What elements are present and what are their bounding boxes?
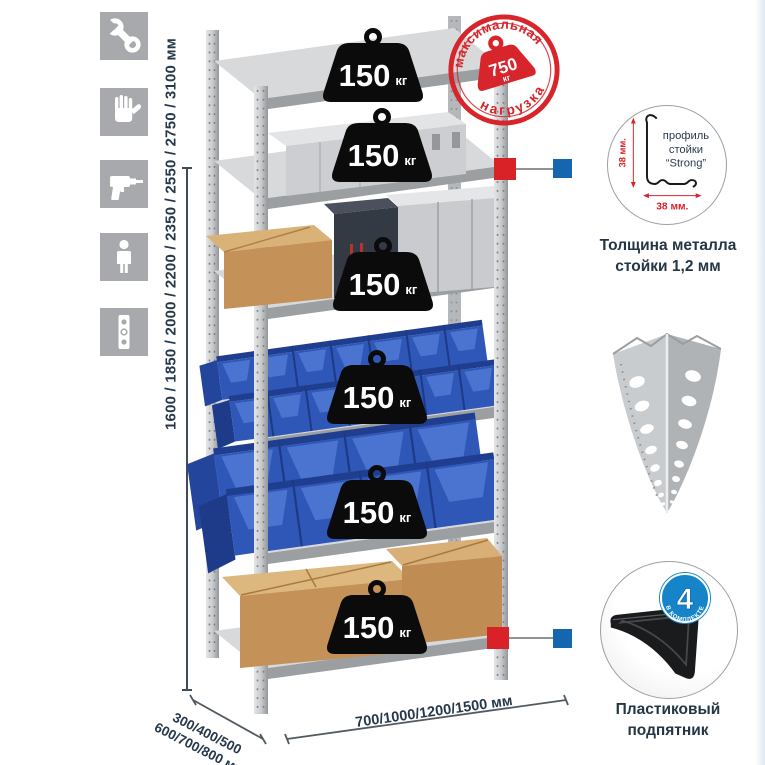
profile-caption-line2: стойки 1,2 мм bbox=[586, 257, 750, 278]
cardboard-box-small bbox=[206, 225, 332, 309]
profile-callout-connector bbox=[494, 158, 572, 180]
load-value: 150 bbox=[339, 60, 391, 91]
profile-width-dim: 38 мм. bbox=[656, 201, 688, 212]
load-unit: кг bbox=[399, 385, 411, 410]
post-profile-detail: 38 мм. 38 мм. профиль стойки “Strong” bbox=[607, 105, 727, 225]
shelf-load-badge-1: 150кг bbox=[318, 28, 428, 104]
product-infographic: 1600 / 1850 / 2000 / 2200 / 2350 / 2550 … bbox=[0, 0, 765, 765]
foot-caption-line2: подпятник bbox=[588, 721, 748, 742]
shelf-load-badge-4: 150кг bbox=[322, 350, 432, 426]
profile-label-3: “Strong” bbox=[666, 157, 707, 169]
foot-count-badge: 4 В КОМПЛЕКТЕ bbox=[658, 571, 712, 625]
foot-caption: Пластиковый подпятник bbox=[588, 700, 748, 742]
foot-callout-connector bbox=[487, 627, 572, 649]
load-value: 150 bbox=[348, 140, 400, 171]
load-value: 150 bbox=[343, 612, 395, 643]
profile-label-2: стойки bbox=[669, 144, 703, 156]
load-unit: кг bbox=[395, 63, 407, 88]
shelf-load-badge-6: 150кг bbox=[322, 580, 432, 656]
foot-caption-line1: Пластиковый bbox=[588, 700, 748, 721]
angle-post-image bbox=[597, 316, 737, 526]
horizontal-dim-arrow bbox=[643, 193, 701, 198]
shelf-load-badge-2: 150кг bbox=[327, 108, 437, 184]
load-unit: кг bbox=[405, 272, 417, 297]
load-value: 150 bbox=[343, 497, 395, 528]
profile-height-dim: 38 мм. bbox=[618, 138, 628, 167]
vertical-dim-arrow bbox=[631, 118, 636, 188]
profile-caption-line1: Толщина металла bbox=[586, 236, 750, 257]
foot-count-value: 4 bbox=[677, 583, 694, 616]
profile-caption: Толщина металла стойки 1,2 мм bbox=[586, 236, 750, 278]
profile-label-1: профиль bbox=[663, 130, 709, 142]
load-value: 150 bbox=[343, 382, 395, 413]
shelf-load-badge-3: 150кг bbox=[328, 237, 438, 313]
load-unit: кг bbox=[404, 143, 416, 168]
load-unit: кг bbox=[399, 615, 411, 640]
load-unit: кг bbox=[399, 500, 411, 525]
shelf-load-badge-5: 150кг bbox=[322, 465, 432, 541]
load-value: 150 bbox=[349, 269, 401, 300]
